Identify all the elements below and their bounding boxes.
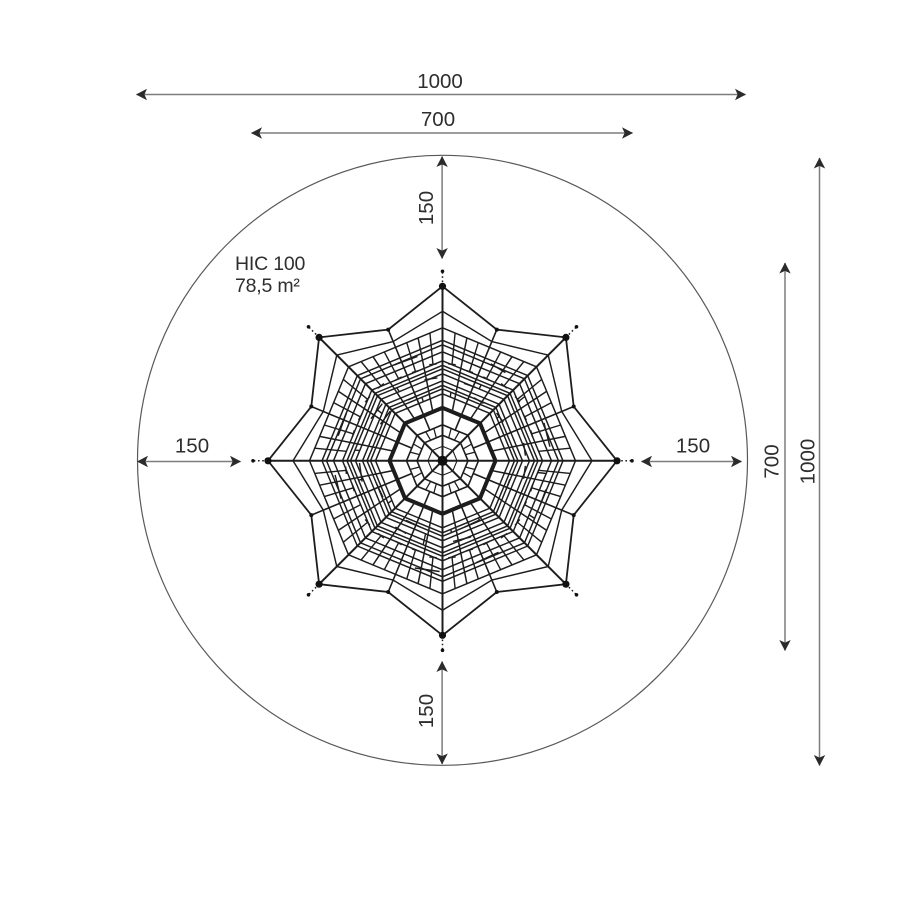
svg-text:150: 150: [415, 694, 438, 728]
svg-text:700: 700: [421, 108, 455, 131]
svg-text:1000: 1000: [797, 439, 820, 485]
svg-text:150: 150: [175, 435, 209, 458]
svg-text:78,5 m²: 78,5 m²: [235, 275, 300, 297]
svg-text:150: 150: [676, 435, 710, 458]
svg-text:HIC 100: HIC 100: [235, 253, 305, 275]
svg-text:700: 700: [761, 444, 784, 478]
svg-text:1000: 1000: [417, 70, 463, 93]
svg-text:150: 150: [415, 191, 438, 225]
